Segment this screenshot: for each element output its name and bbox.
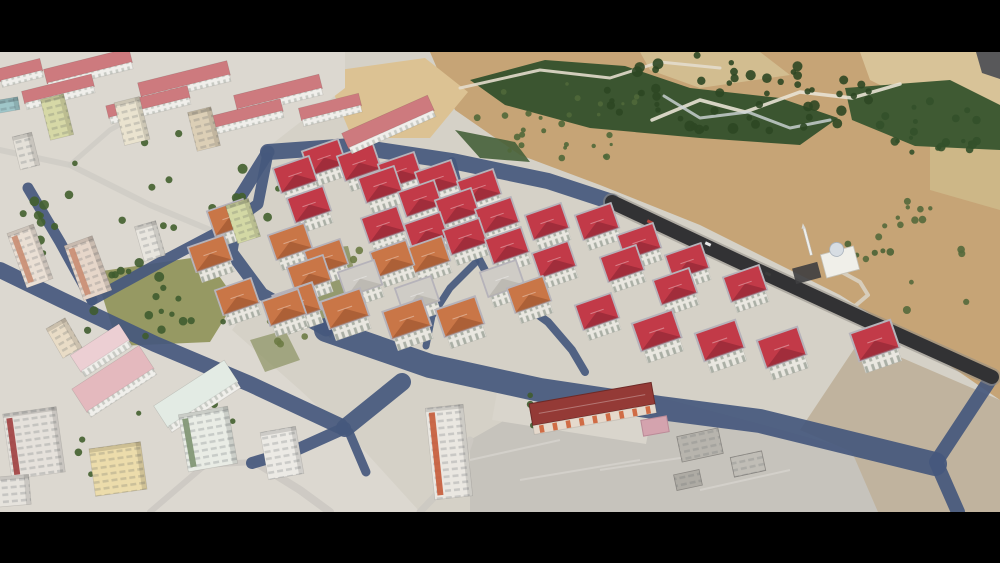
tree bbox=[356, 247, 364, 255]
tree bbox=[84, 327, 91, 334]
tree bbox=[263, 213, 272, 222]
tree bbox=[690, 123, 697, 130]
tree bbox=[876, 121, 885, 130]
tree bbox=[160, 285, 166, 291]
tree bbox=[592, 144, 596, 148]
tree bbox=[507, 148, 511, 152]
tree bbox=[715, 88, 724, 97]
tree bbox=[652, 92, 661, 101]
tree bbox=[564, 142, 569, 147]
tree bbox=[875, 233, 882, 240]
tree bbox=[39, 200, 49, 210]
tree bbox=[604, 87, 611, 94]
tree bbox=[703, 125, 709, 131]
tree bbox=[800, 123, 807, 130]
tree bbox=[610, 143, 613, 146]
tree bbox=[909, 150, 914, 155]
tree bbox=[968, 140, 977, 149]
tree bbox=[697, 77, 705, 85]
tree bbox=[65, 191, 74, 200]
tree bbox=[963, 299, 969, 305]
tree bbox=[764, 91, 770, 97]
tree bbox=[909, 136, 913, 140]
tree bbox=[616, 109, 623, 116]
tree bbox=[836, 106, 846, 116]
tree bbox=[117, 267, 125, 275]
tree bbox=[972, 116, 980, 124]
tree bbox=[652, 66, 659, 73]
tree bbox=[809, 87, 815, 93]
tree bbox=[694, 52, 701, 59]
tree bbox=[30, 196, 40, 206]
tree bbox=[238, 164, 248, 174]
tree bbox=[655, 107, 661, 113]
tree bbox=[519, 142, 525, 148]
tree bbox=[79, 437, 85, 443]
tree bbox=[880, 248, 885, 253]
tree bbox=[75, 449, 83, 457]
tree bbox=[220, 319, 226, 325]
tree bbox=[519, 132, 525, 138]
tree bbox=[872, 250, 878, 256]
tree bbox=[910, 128, 918, 136]
tree bbox=[277, 340, 284, 347]
tree bbox=[917, 206, 924, 213]
tree bbox=[119, 217, 126, 224]
tree bbox=[169, 312, 174, 317]
tree bbox=[126, 269, 132, 275]
tree bbox=[350, 256, 357, 263]
tree bbox=[145, 311, 154, 320]
tree bbox=[541, 128, 546, 133]
tree bbox=[38, 213, 44, 219]
tree bbox=[609, 98, 614, 103]
tree bbox=[521, 128, 526, 133]
tree bbox=[654, 102, 659, 107]
city-tower bbox=[3, 407, 66, 480]
scene-3d-viewport[interactable] bbox=[0, 0, 1000, 563]
tree bbox=[501, 89, 507, 95]
tree bbox=[935, 145, 941, 151]
tree bbox=[952, 115, 960, 123]
tree bbox=[157, 326, 165, 334]
tree bbox=[175, 130, 182, 137]
tree bbox=[188, 317, 195, 324]
letterbox-top bbox=[0, 0, 1000, 52]
tree bbox=[527, 393, 533, 399]
tree bbox=[539, 116, 543, 120]
tree bbox=[154, 272, 164, 282]
tree bbox=[756, 101, 763, 108]
viewer-window bbox=[0, 0, 1000, 563]
tree bbox=[751, 120, 760, 129]
letterbox-bottom bbox=[0, 512, 1000, 563]
tree bbox=[728, 123, 739, 134]
tree bbox=[746, 70, 756, 80]
tree bbox=[301, 333, 308, 340]
tree bbox=[961, 139, 965, 143]
tree bbox=[845, 241, 852, 248]
tree bbox=[604, 154, 611, 161]
tree bbox=[638, 90, 644, 96]
tree bbox=[597, 113, 601, 117]
tree bbox=[727, 80, 733, 86]
city-tower bbox=[0, 474, 31, 507]
tree bbox=[793, 61, 803, 71]
tree bbox=[794, 81, 801, 88]
tree bbox=[179, 317, 188, 326]
tree bbox=[857, 81, 865, 89]
tree bbox=[160, 222, 167, 229]
tree bbox=[598, 101, 603, 106]
tree bbox=[565, 82, 569, 86]
tree bbox=[778, 79, 784, 85]
tree bbox=[729, 60, 734, 65]
tree bbox=[881, 112, 889, 120]
tree bbox=[958, 250, 965, 257]
tree bbox=[911, 216, 918, 223]
tree bbox=[170, 224, 177, 231]
tree bbox=[502, 112, 509, 119]
tree bbox=[621, 102, 624, 105]
tree bbox=[632, 99, 638, 105]
tree bbox=[762, 73, 772, 83]
tree bbox=[575, 95, 581, 101]
tree bbox=[906, 205, 910, 209]
tree bbox=[964, 107, 970, 113]
tree bbox=[166, 176, 173, 183]
tree bbox=[148, 184, 155, 191]
tree bbox=[903, 306, 911, 314]
tree bbox=[909, 280, 914, 285]
tree bbox=[175, 296, 181, 302]
tree bbox=[928, 206, 932, 210]
tree bbox=[887, 248, 895, 256]
tree bbox=[926, 97, 934, 105]
tree bbox=[919, 216, 927, 224]
tree bbox=[51, 223, 58, 230]
tree bbox=[851, 93, 857, 99]
tree bbox=[832, 119, 842, 129]
tree bbox=[746, 115, 752, 121]
tree bbox=[766, 127, 774, 135]
tree bbox=[865, 88, 871, 94]
tree bbox=[836, 91, 843, 98]
tree bbox=[839, 76, 848, 85]
tree bbox=[882, 223, 887, 228]
tree bbox=[72, 161, 78, 167]
tree bbox=[159, 309, 164, 314]
tree bbox=[567, 112, 572, 117]
tree bbox=[651, 84, 660, 93]
tree bbox=[135, 258, 144, 267]
tree bbox=[904, 198, 911, 205]
tree bbox=[20, 210, 27, 217]
tree bbox=[558, 120, 565, 127]
tree bbox=[730, 68, 738, 76]
tree bbox=[864, 96, 873, 105]
tree bbox=[152, 293, 159, 300]
tree bbox=[896, 216, 900, 220]
tree bbox=[635, 62, 645, 72]
tree bbox=[913, 119, 918, 124]
tree bbox=[678, 116, 684, 122]
tree bbox=[606, 132, 612, 138]
tree bbox=[136, 411, 141, 416]
tree bbox=[142, 333, 149, 340]
tree bbox=[89, 306, 98, 315]
tree bbox=[474, 114, 481, 121]
tree bbox=[912, 105, 917, 110]
tree bbox=[559, 155, 566, 162]
tree bbox=[863, 256, 869, 262]
tree bbox=[793, 71, 802, 80]
tree bbox=[525, 111, 531, 117]
tree bbox=[897, 222, 904, 229]
tree bbox=[634, 94, 639, 99]
city-tower bbox=[178, 406, 237, 472]
tree bbox=[891, 137, 900, 146]
tree bbox=[806, 114, 813, 121]
tree bbox=[710, 107, 718, 115]
tree bbox=[809, 100, 820, 111]
city-tower bbox=[89, 442, 147, 497]
